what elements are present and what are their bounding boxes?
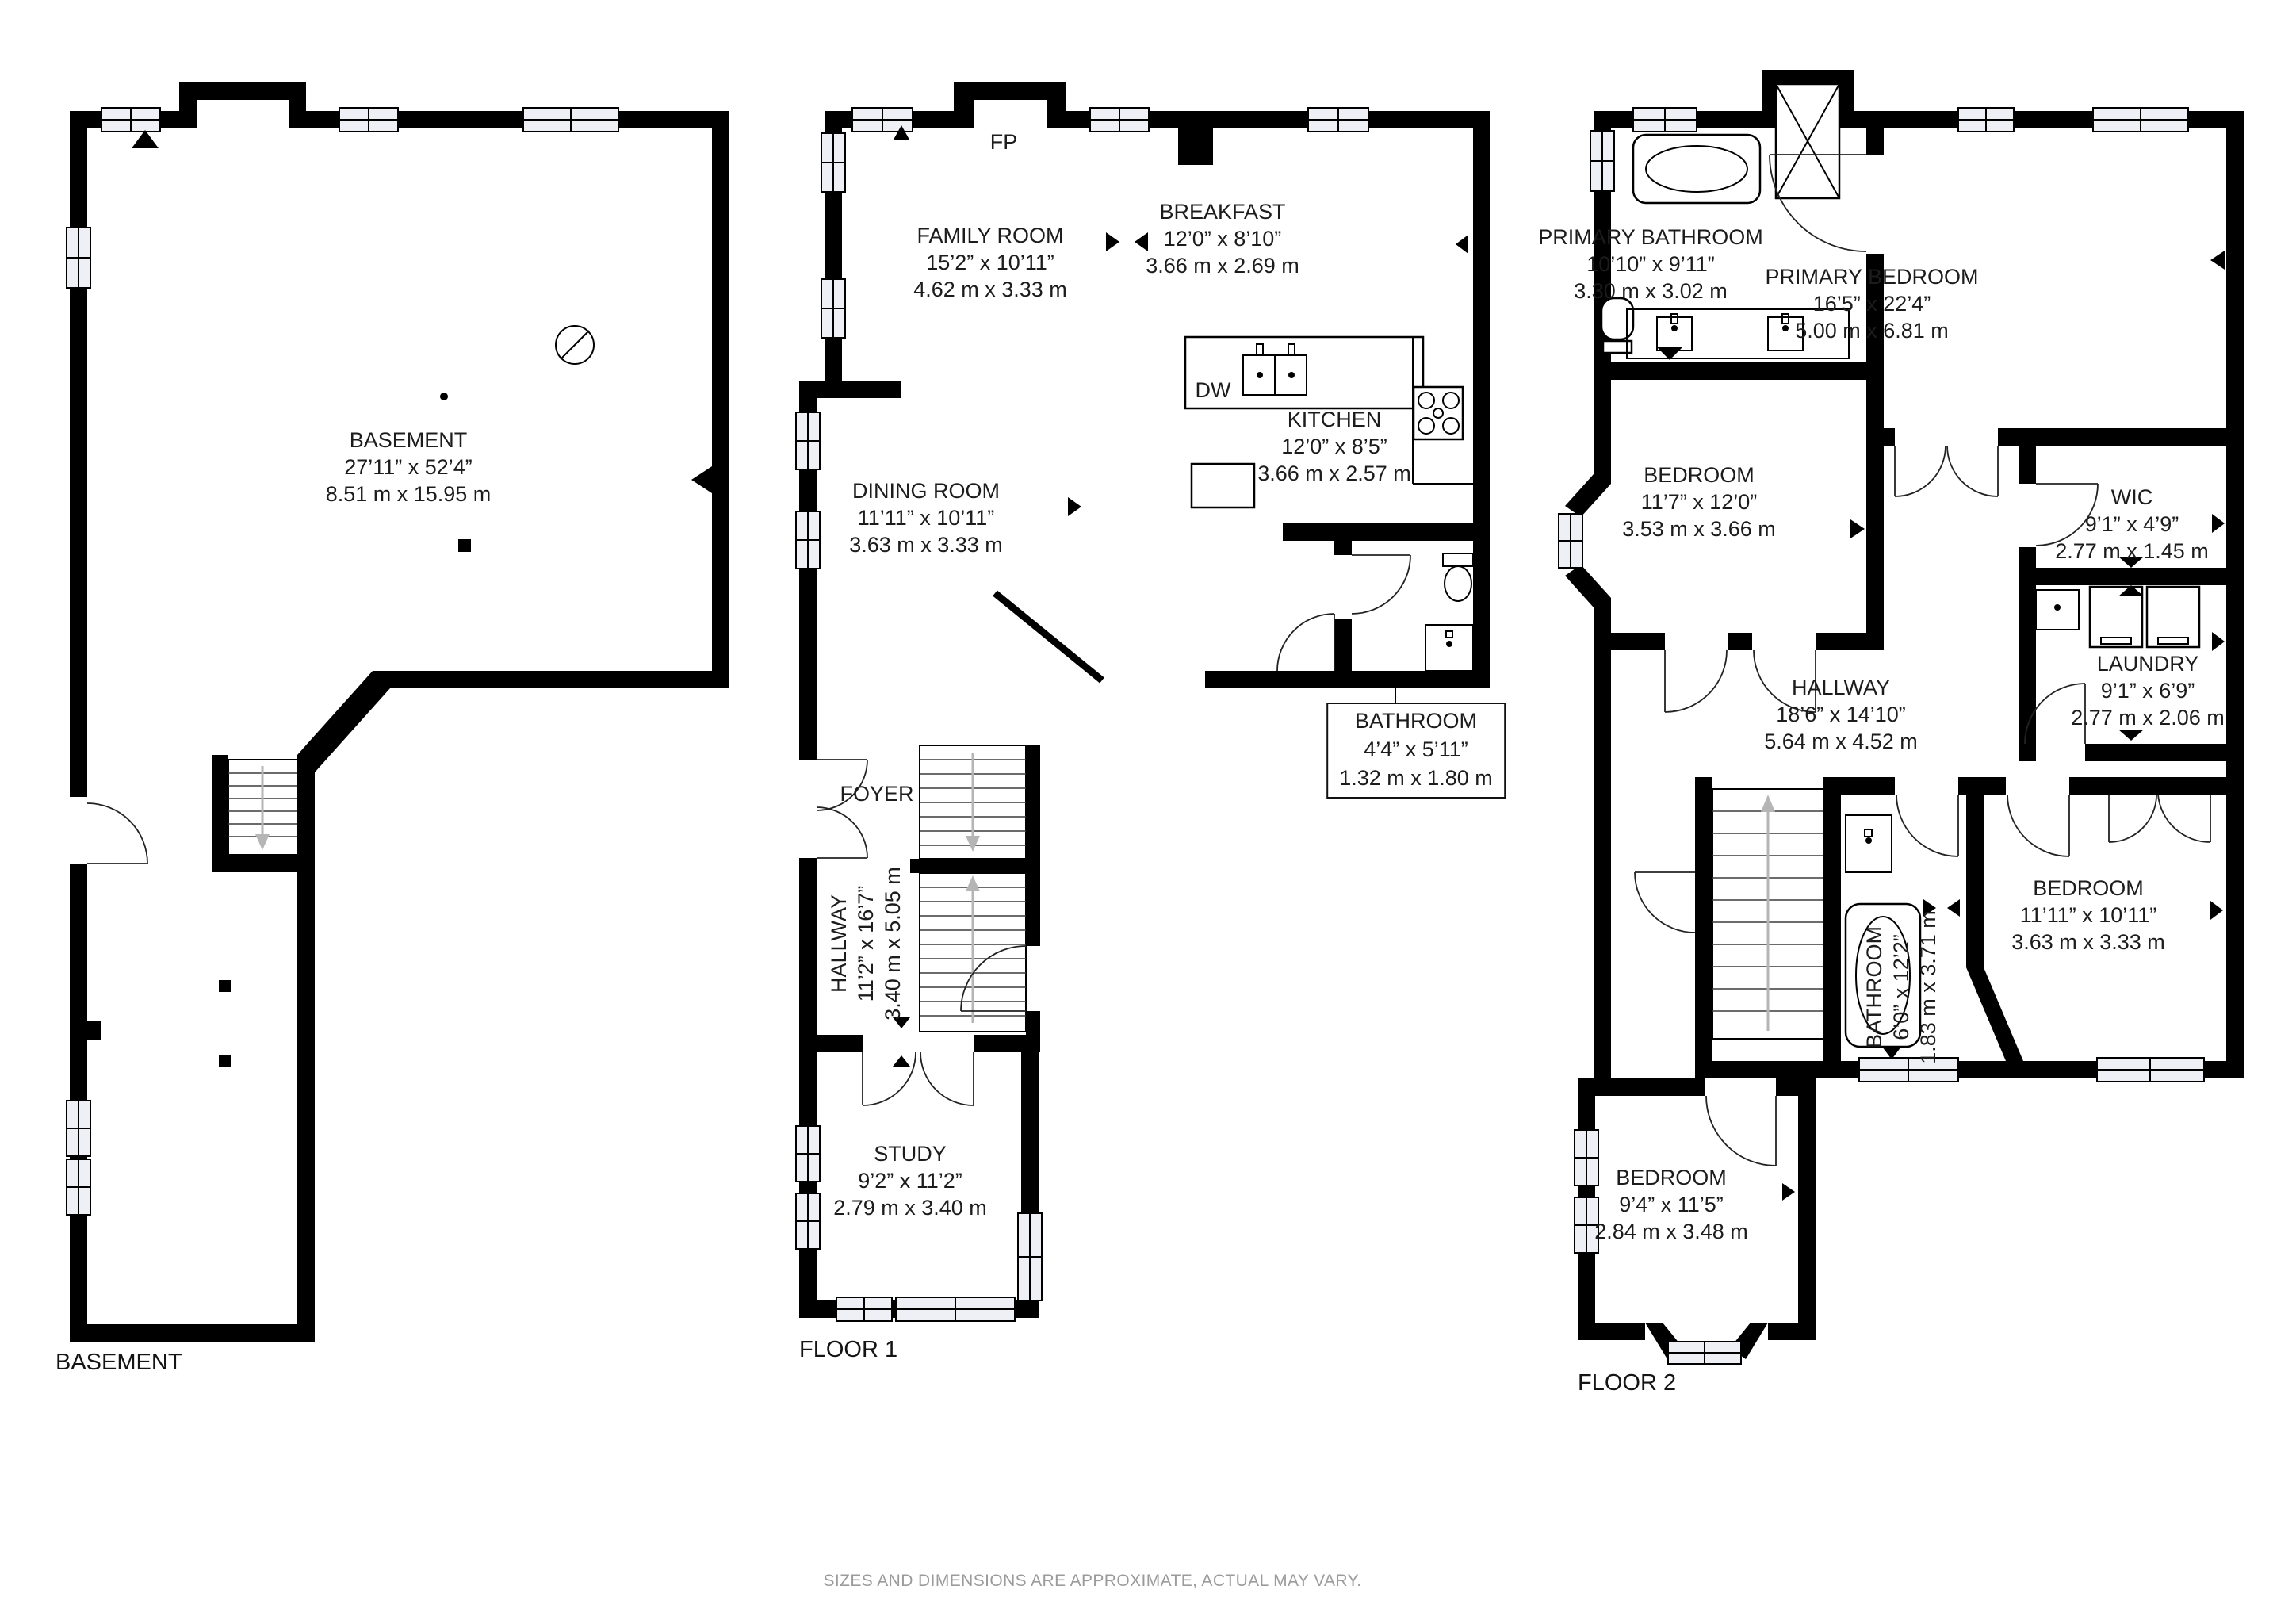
window-icon bbox=[67, 228, 90, 288]
window-icon bbox=[1018, 1213, 1042, 1300]
stair-railing bbox=[995, 593, 1102, 680]
basement-markers bbox=[80, 130, 712, 1067]
floor2-stairs bbox=[1712, 789, 1823, 1039]
window-icon bbox=[796, 1126, 820, 1182]
window-icon bbox=[821, 279, 845, 338]
floor1-stairs bbox=[920, 745, 1026, 1032]
double-door-icon bbox=[1895, 446, 1998, 496]
window-icon bbox=[2097, 1058, 2204, 1082]
basement-walls bbox=[70, 82, 729, 1342]
stove-icon bbox=[1414, 387, 1463, 439]
support-post-icon bbox=[219, 1055, 231, 1067]
opening-arrow-icon bbox=[893, 1055, 910, 1067]
opening-arrow-icon bbox=[2212, 514, 2225, 533]
basement-door-icon bbox=[87, 803, 147, 864]
toilet-icon bbox=[1601, 298, 1633, 353]
room-label-hallway-floor1: HALLWAY 11’2” x 16’7” 3.40 m x 5.05 m bbox=[825, 867, 906, 1021]
opening-arrow-icon bbox=[2210, 901, 2223, 920]
room-label-bedroom-2: BEDROOM 11’7” x 12’0” 3.53 m x 3.66 m bbox=[1622, 462, 1776, 542]
window-icon bbox=[1590, 131, 1614, 191]
disclaimer-text: SIZES AND DIMENSIONS ARE APPROXIMATE, AC… bbox=[823, 1572, 1361, 1591]
door-icon bbox=[1352, 555, 1410, 614]
opening-arrow-icon bbox=[1782, 1183, 1795, 1201]
laundry-sink-icon bbox=[2036, 590, 2079, 630]
opening-arrow-icon bbox=[1947, 899, 1960, 917]
opening-arrow-icon bbox=[1456, 235, 1468, 254]
room-label-bedroom-bottom: BEDROOM 9’4” x 11’5” 2.84 m x 3.48 m bbox=[1594, 1164, 1748, 1245]
study-door-icon bbox=[863, 1052, 974, 1105]
entry-door-icon bbox=[817, 760, 867, 858]
window-icon bbox=[1633, 108, 1697, 132]
room-label-wic: WIC 9’1” x 4’9” 2.77 m x 1.45 m bbox=[2055, 484, 2209, 565]
toilet-icon bbox=[1443, 553, 1473, 601]
floor1-walls bbox=[799, 82, 1490, 1318]
window-icon bbox=[896, 1297, 1015, 1321]
room-label-kitchen: KITCHEN 12’0” x 8’5” 3.66 m x 2.57 m bbox=[1257, 406, 1411, 487]
opening-arrow-icon bbox=[1068, 497, 1081, 516]
basement-windows bbox=[67, 108, 618, 1215]
room-label-breakfast: BREAKFAST 12’0” x 8’10” 3.66 m x 2.69 m bbox=[1146, 198, 1299, 279]
basement-plan bbox=[67, 82, 729, 1342]
floor-title-basement: BASEMENT bbox=[55, 1350, 182, 1376]
room-label-laundry: LAUNDRY 9’1” x 6’9” 2.77 m x 2.06 m bbox=[2071, 650, 2225, 731]
door-icon bbox=[2007, 795, 2069, 856]
room-label-study: STUDY 9’2” x 11’2” 2.79 m x 3.40 m bbox=[833, 1140, 987, 1221]
basement-stairs bbox=[228, 760, 297, 855]
vanity-sink-icon bbox=[1846, 815, 1892, 872]
vanity-sink-icon bbox=[1425, 625, 1473, 671]
window-icon bbox=[67, 1159, 90, 1215]
window-icon bbox=[796, 412, 820, 469]
support-post-icon bbox=[80, 676, 86, 682]
room-label-family-room: FAMILY ROOM 15’2” x 10’11” 4.62 m x 3.33… bbox=[913, 222, 1067, 303]
fireplace-icon bbox=[974, 100, 1047, 128]
window-icon bbox=[67, 1101, 90, 1156]
window-icon bbox=[1308, 108, 1368, 132]
support-post-icon bbox=[219, 980, 231, 992]
window-icon bbox=[836, 1297, 892, 1321]
shower-icon bbox=[1776, 84, 1839, 198]
floor-title-floor2: FLOOR 2 bbox=[1578, 1370, 1676, 1396]
floorplan-page: BASEMENT 27’11” x 52’4” 8.51 m x 15.95 m… bbox=[0, 0, 2296, 1624]
fireplace-label: FP bbox=[990, 130, 1018, 154]
opening-arrow-icon bbox=[1106, 232, 1119, 251]
window-icon bbox=[1958, 108, 2014, 132]
room-label-bathroom-floor1: BATHROOM 4’4” x 5’11” 1.32 m x 1.80 m bbox=[1326, 703, 1506, 799]
floor1-plan bbox=[796, 82, 1490, 1321]
floor1-windows bbox=[796, 108, 1368, 1321]
entry-arrow-icon bbox=[132, 130, 159, 148]
door-icon bbox=[1635, 872, 1695, 933]
room-label-foyer: FOYER bbox=[840, 782, 913, 806]
support-post-icon bbox=[440, 393, 448, 400]
window-icon bbox=[852, 108, 913, 132]
room-label-basement: BASEMENT 27’11” x 52’4” 8.51 m x 15.95 m bbox=[326, 427, 492, 507]
floor-title-floor1: FLOOR 1 bbox=[799, 1337, 897, 1363]
dryer-icon bbox=[2147, 587, 2199, 647]
opening-arrow-icon bbox=[2210, 251, 2225, 270]
window-icon bbox=[339, 108, 398, 132]
room-label-hallway-floor2: HALLWAY 18’6” x 14’10” 5.64 m x 4.52 m bbox=[1764, 674, 1918, 755]
window-icon bbox=[101, 108, 160, 132]
door-icon bbox=[1706, 1096, 1776, 1166]
opening-arrow-icon bbox=[691, 466, 712, 493]
window-icon bbox=[1090, 108, 1149, 132]
support-post-icon bbox=[458, 539, 471, 552]
room-label-primary-bedroom: PRIMARY BEDROOM 16’5” x 22’4” 5.00 m x 6… bbox=[1765, 263, 1978, 344]
room-label-bathroom-floor2: BATHROOM 6’0” x 12’2” 1.83 m x 3.71 m bbox=[1861, 910, 1942, 1064]
window-icon bbox=[796, 511, 820, 569]
door-icon bbox=[1277, 614, 1334, 671]
room-label-primary-bathroom: PRIMARY BATHROOM 10’10” x 9’11” 3.30 m x… bbox=[1538, 224, 1763, 304]
window-icon bbox=[2093, 108, 2188, 132]
door-icon bbox=[1896, 795, 1958, 856]
bathtub-icon bbox=[1633, 135, 1760, 203]
opening-arrow-icon bbox=[2118, 730, 2144, 741]
opening-arrow-icon bbox=[1850, 519, 1865, 538]
window-icon bbox=[523, 108, 618, 132]
window-icon bbox=[796, 1193, 820, 1249]
room-label-bedroom-right: BEDROOM 11’11” x 10’11” 3.63 m x 3.33 m bbox=[2011, 875, 2165, 956]
opening-arrow-icon bbox=[2212, 632, 2225, 651]
room-label-dining-room: DINING ROOM 11’11” x 10’11” 3.63 m x 3.3… bbox=[849, 477, 1003, 558]
dishwasher-label: DW bbox=[1196, 378, 1231, 402]
window-icon bbox=[1668, 1342, 1741, 1364]
closet-door-icon bbox=[2109, 795, 2210, 842]
fridge-icon bbox=[1192, 464, 1254, 507]
window-icon bbox=[1559, 514, 1582, 568]
window-icon bbox=[821, 133, 845, 192]
